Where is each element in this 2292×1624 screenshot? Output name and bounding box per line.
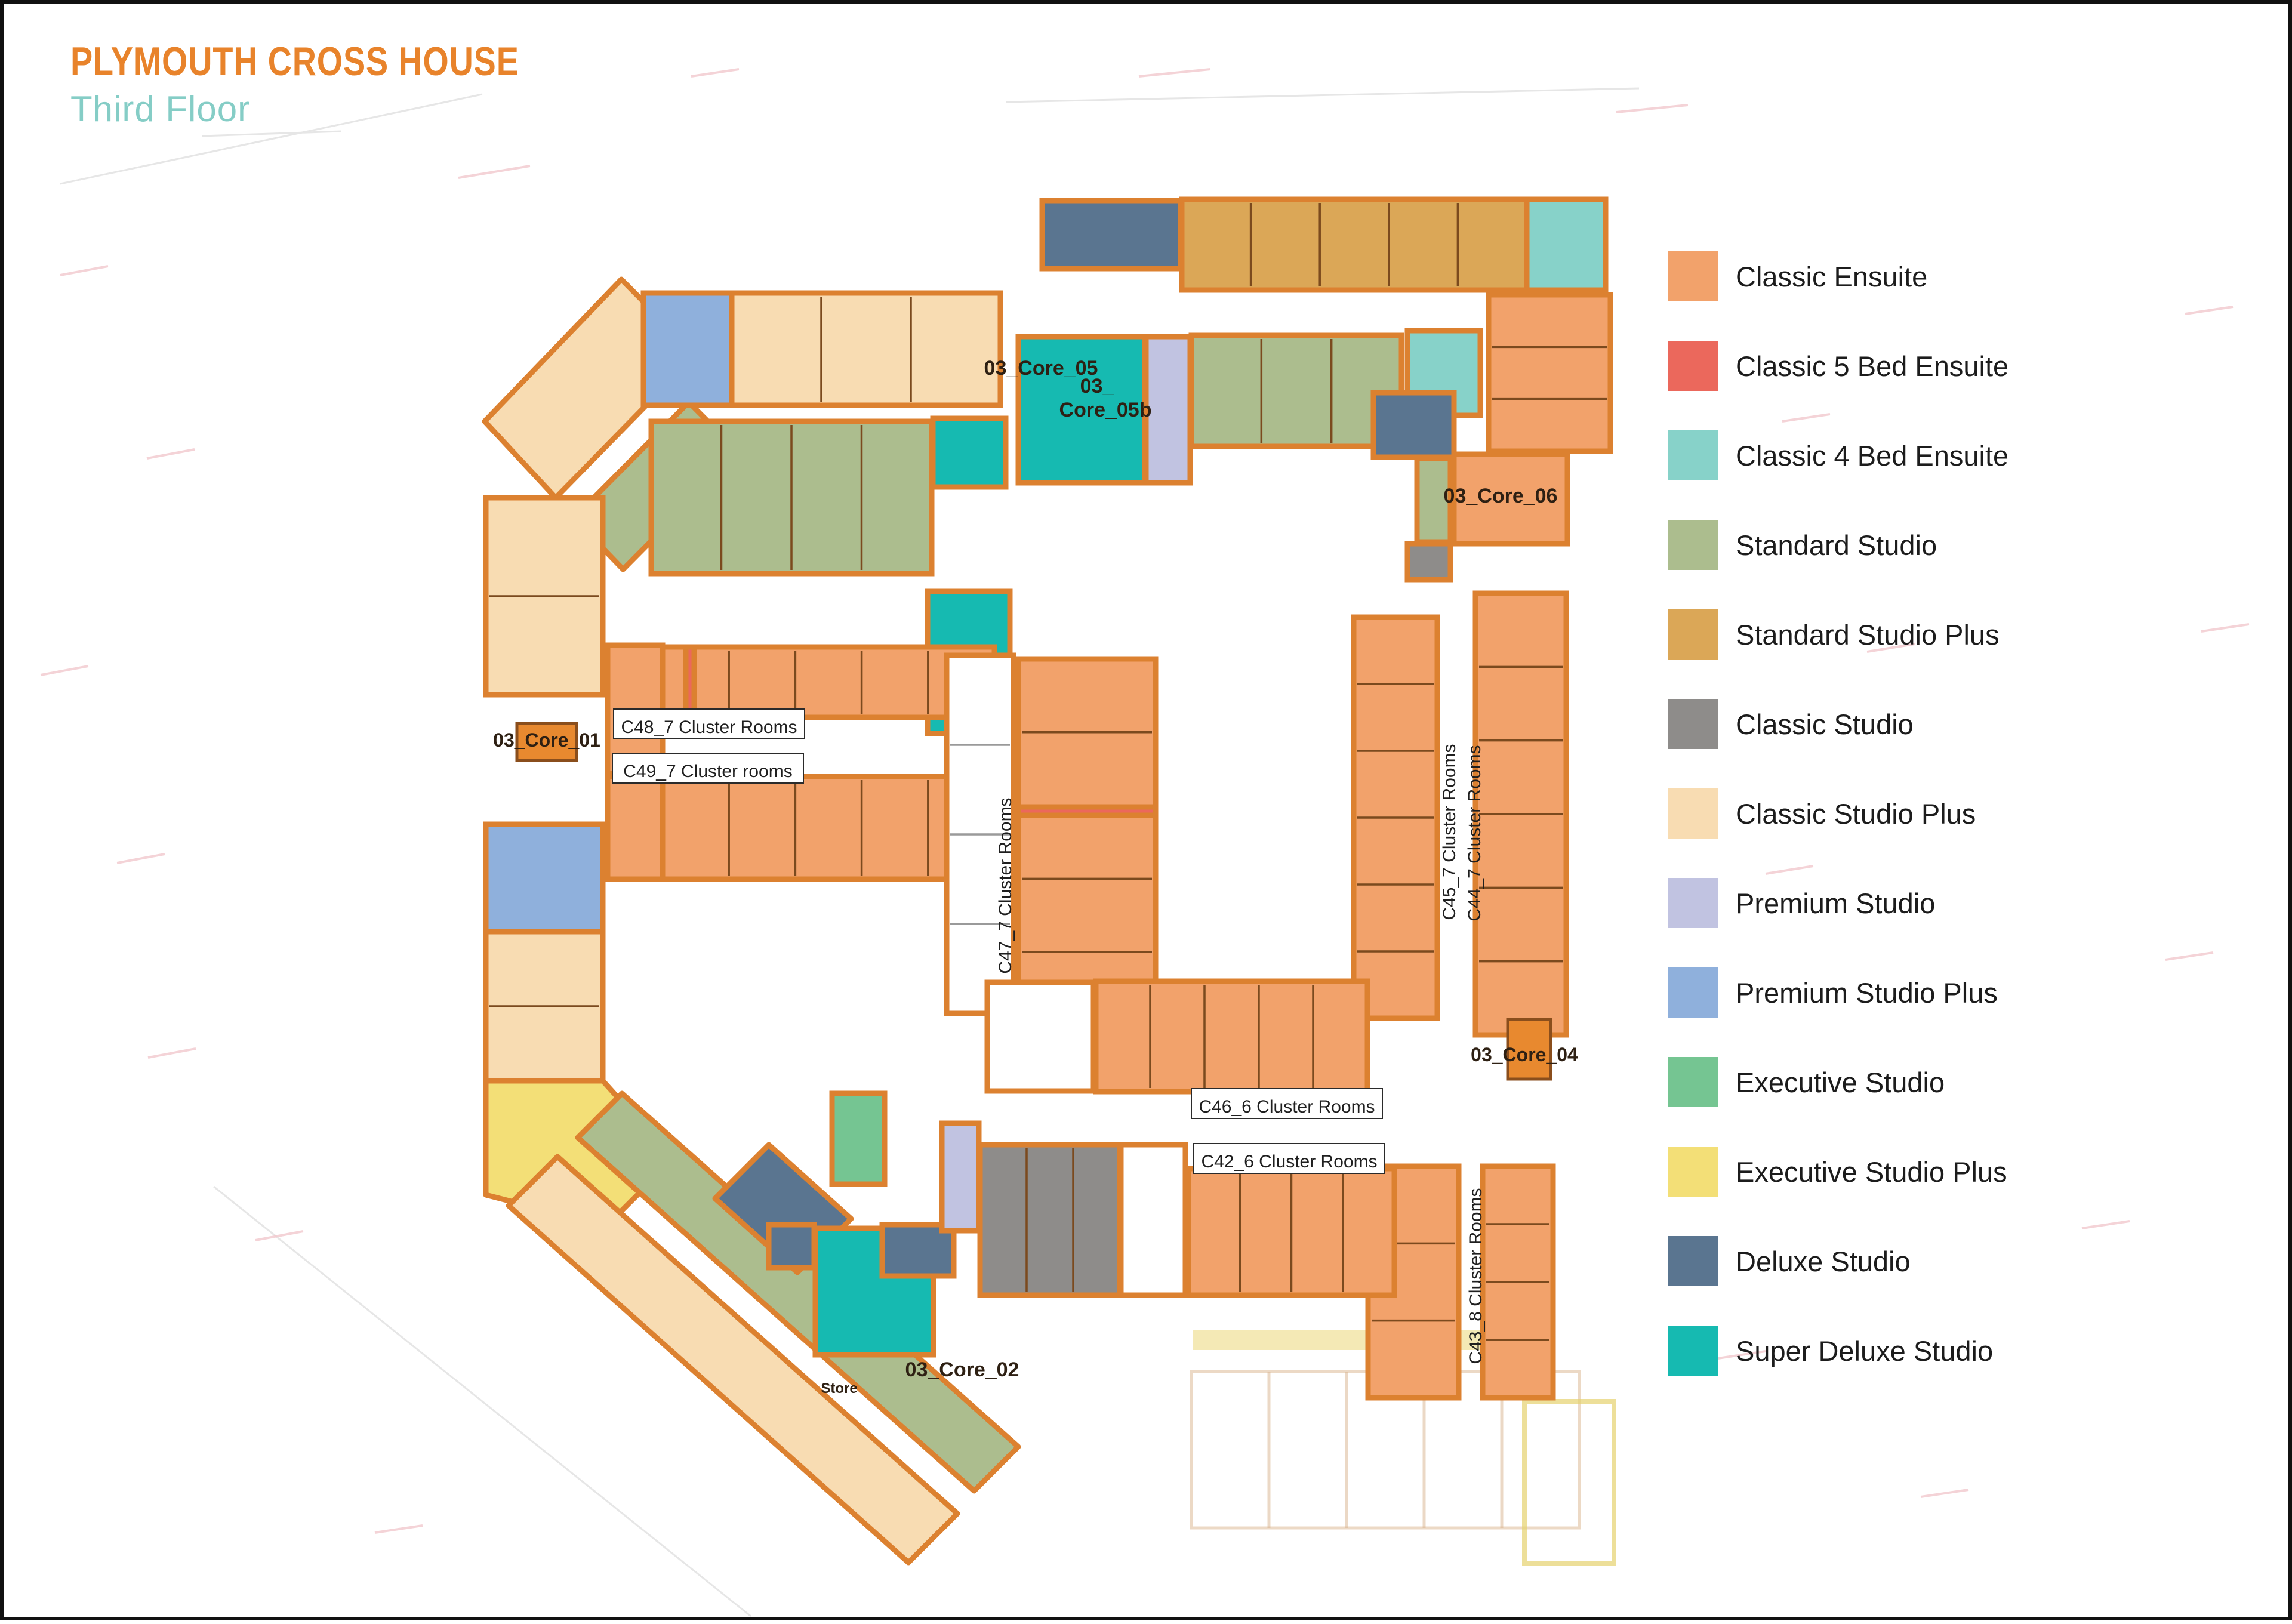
site-line xyxy=(1006,88,1639,102)
core-label: 03_Core_02 xyxy=(905,1358,1019,1381)
room-ps xyxy=(1146,337,1190,483)
cluster-label: C49_7 Cluster rooms xyxy=(623,762,792,781)
core-label: 03_ xyxy=(1080,375,1115,397)
room-ce xyxy=(1018,659,1156,1025)
legend: Classic EnsuiteClassic 5 Bed EnsuiteClas… xyxy=(1668,251,2008,1415)
room-c5 xyxy=(686,647,694,717)
legend-item-cs: Classic Studio xyxy=(1668,699,2008,749)
cluster-label: C47_7 Cluster Rooms xyxy=(996,797,1015,973)
room-ce xyxy=(1489,295,1610,451)
room-ps xyxy=(942,1123,979,1231)
page-subtitle: Third Floor xyxy=(70,88,618,130)
legend-swatch-ssp xyxy=(1668,609,1718,660)
core-label: Core_05b xyxy=(1059,399,1152,421)
room-es xyxy=(832,1093,885,1184)
cluster-label: C44_7 Cluster Rooms xyxy=(1465,745,1484,921)
accent-line xyxy=(1921,1490,1968,1497)
accent-line xyxy=(147,449,195,458)
legend-item-es: Executive Studio xyxy=(1668,1057,2008,1107)
accent-line xyxy=(1616,105,1688,112)
legend-swatch-ds xyxy=(1668,1236,1718,1286)
core-label: 03_Core_06 xyxy=(1444,485,1558,507)
legend-item-c4: Classic 4 Bed Ensuite xyxy=(1668,430,2008,480)
legend-label-ds: Deluxe Studio xyxy=(1736,1245,1911,1278)
legend-item-psp: Premium Studio Plus xyxy=(1668,967,2008,1018)
legend-item-ps: Premium Studio xyxy=(1668,878,2008,928)
cluster-label: C48_7 Cluster Rooms xyxy=(621,717,797,737)
legend-label-c4: Classic 4 Bed Ensuite xyxy=(1736,439,2008,472)
legend-swatch-c4 xyxy=(1668,430,1718,480)
legend-swatch-es xyxy=(1668,1057,1718,1107)
accent-line xyxy=(2165,953,2213,960)
legend-item-c5: Classic 5 Bed Ensuite xyxy=(1668,341,2008,391)
legend-label-ssp: Standard Studio Plus xyxy=(1736,618,2000,651)
legend-item-ss: Standard Studio xyxy=(1668,520,2008,570)
legend-item-ssp: Standard Studio Plus xyxy=(1668,609,2008,660)
core-label: Store xyxy=(821,1380,857,1397)
room-csp xyxy=(732,293,1000,405)
room-ssp xyxy=(1182,199,1527,290)
room-w xyxy=(987,982,1093,1091)
legend-label-psp: Premium Studio Plus xyxy=(1736,976,1998,1009)
cluster-label: C43_8 Cluster Rooms xyxy=(1466,1188,1486,1364)
room-ce xyxy=(1096,981,1367,1092)
legend-swatch-esp xyxy=(1668,1147,1718,1197)
legend-swatch-csp xyxy=(1668,788,1718,839)
room-psp xyxy=(486,824,603,932)
accent-line xyxy=(60,266,108,275)
room-ds xyxy=(1042,201,1181,269)
legend-swatch-ps xyxy=(1668,878,1718,928)
accent-line xyxy=(375,1526,423,1533)
legend-swatch-cs xyxy=(1668,699,1718,749)
legend-label-cs: Classic Studio xyxy=(1736,708,1914,741)
room-w xyxy=(1121,1145,1185,1295)
header: PLYMOUTH CROSS HOUSE Third Floor xyxy=(70,38,618,130)
core-label: 03_Core_01 xyxy=(493,729,600,751)
accent-line xyxy=(2185,307,2233,314)
site-line xyxy=(214,1187,751,1616)
room-c4 xyxy=(1527,199,1606,290)
accent-line xyxy=(1139,69,1210,76)
room-ce xyxy=(608,776,663,879)
legend-label-es: Executive Studio xyxy=(1736,1066,1945,1099)
accent-line xyxy=(41,666,88,675)
cluster-label: C45_7 Cluster Rooms xyxy=(1440,744,1459,920)
legend-swatch-ss xyxy=(1668,520,1718,570)
legend-label-ps: Premium Studio xyxy=(1736,887,1935,920)
legend-label-esp: Executive Studio Plus xyxy=(1736,1155,2007,1188)
room-cs xyxy=(980,1145,1120,1295)
accent-line xyxy=(2201,624,2249,631)
legend-item-csp: Classic Studio Plus xyxy=(1668,788,2008,839)
accent-line xyxy=(691,69,739,76)
legend-label-sds: Super Deluxe Studio xyxy=(1736,1335,1993,1367)
page: { "page": { "title": "PLYMOUTH CROSS HOU… xyxy=(0,0,2292,1620)
room-ds xyxy=(1373,393,1454,457)
room-ds xyxy=(769,1225,814,1268)
legend-swatch-psp xyxy=(1668,967,1718,1018)
legend-swatch-c5 xyxy=(1668,341,1718,391)
legend-item-ce: Classic Ensuite xyxy=(1668,251,2008,301)
legend-item-sds: Super Deluxe Studio xyxy=(1668,1326,2008,1376)
cluster-label: C42_6 Cluster Rooms xyxy=(1201,1152,1377,1172)
room-ss xyxy=(1191,335,1401,446)
legend-item-esp: Executive Studio Plus xyxy=(1668,1147,2008,1197)
accent-line xyxy=(2082,1221,2130,1228)
legend-swatch-sds xyxy=(1668,1326,1718,1376)
accent-line xyxy=(148,1049,196,1058)
accent-line xyxy=(458,166,530,178)
page-title: PLYMOUTH CROSS HOUSE xyxy=(70,38,519,85)
legend-label-c5: Classic 5 Bed Ensuite xyxy=(1736,350,2008,383)
room-c5 xyxy=(1018,807,1156,815)
room-sds xyxy=(933,418,1006,487)
legend-label-csp: Classic Studio Plus xyxy=(1736,797,1976,830)
room-psp xyxy=(643,293,732,405)
legend-label-ce: Classic Ensuite xyxy=(1736,260,1927,293)
cluster-label: C46_6 Cluster Rooms xyxy=(1199,1097,1375,1117)
room-cs xyxy=(1407,544,1450,580)
site-line xyxy=(202,131,341,136)
legend-label-ss: Standard Studio xyxy=(1736,529,1937,562)
legend-swatch-ce xyxy=(1668,251,1718,301)
accent-line xyxy=(117,854,165,863)
core-label: 03_Core_04 xyxy=(1471,1044,1578,1065)
legend-item-ds: Deluxe Studio xyxy=(1668,1236,2008,1286)
ghost-corner xyxy=(1524,1401,1614,1564)
